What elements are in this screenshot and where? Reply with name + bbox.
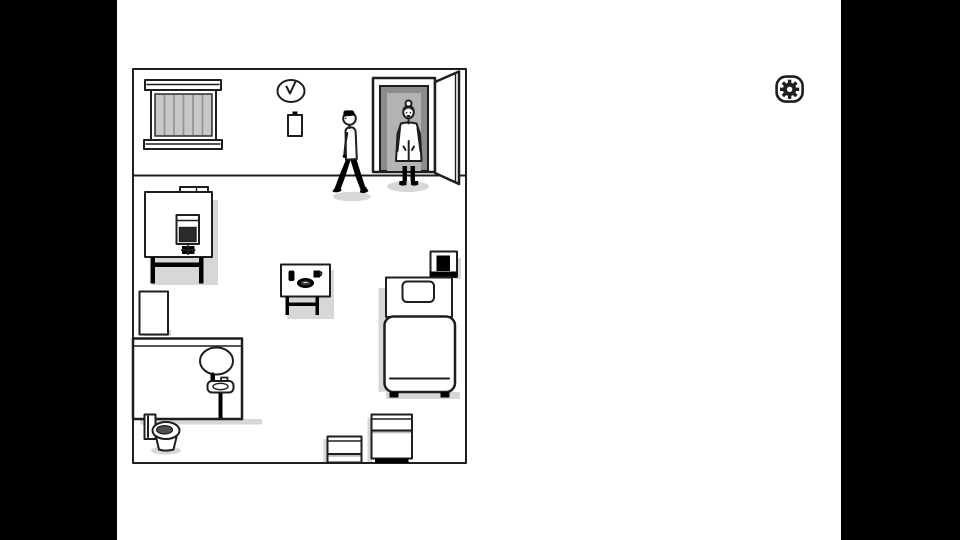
wall-clock[interactable] xyxy=(278,80,305,102)
nurse-shadow xyxy=(387,181,429,192)
note-paper[interactable] xyxy=(288,112,302,137)
open-door[interactable] xyxy=(435,72,459,185)
large-crate[interactable] xyxy=(368,415,413,464)
machine-buttons[interactable] xyxy=(182,246,195,254)
game-stage xyxy=(0,0,960,540)
machine-device[interactable] xyxy=(177,215,200,244)
nightstand[interactable] xyxy=(430,252,462,280)
small-crate[interactable] xyxy=(324,437,362,463)
machine-table[interactable] xyxy=(145,187,218,285)
barred-window[interactable] xyxy=(144,80,222,149)
drinking-glass[interactable] xyxy=(289,271,295,282)
bed[interactable] xyxy=(379,278,461,400)
settings-button[interactable] xyxy=(774,74,806,105)
bathroom-partition xyxy=(133,339,262,425)
food-plate[interactable] xyxy=(297,278,314,288)
storage-box-tall[interactable] xyxy=(140,292,172,337)
man-shadow xyxy=(333,192,371,202)
gear-icon xyxy=(774,74,806,105)
blanket[interactable] xyxy=(385,317,456,393)
room-scene xyxy=(0,0,960,540)
meal-table[interactable] xyxy=(281,265,334,320)
mirror[interactable] xyxy=(200,348,233,375)
pillow[interactable] xyxy=(403,282,435,303)
